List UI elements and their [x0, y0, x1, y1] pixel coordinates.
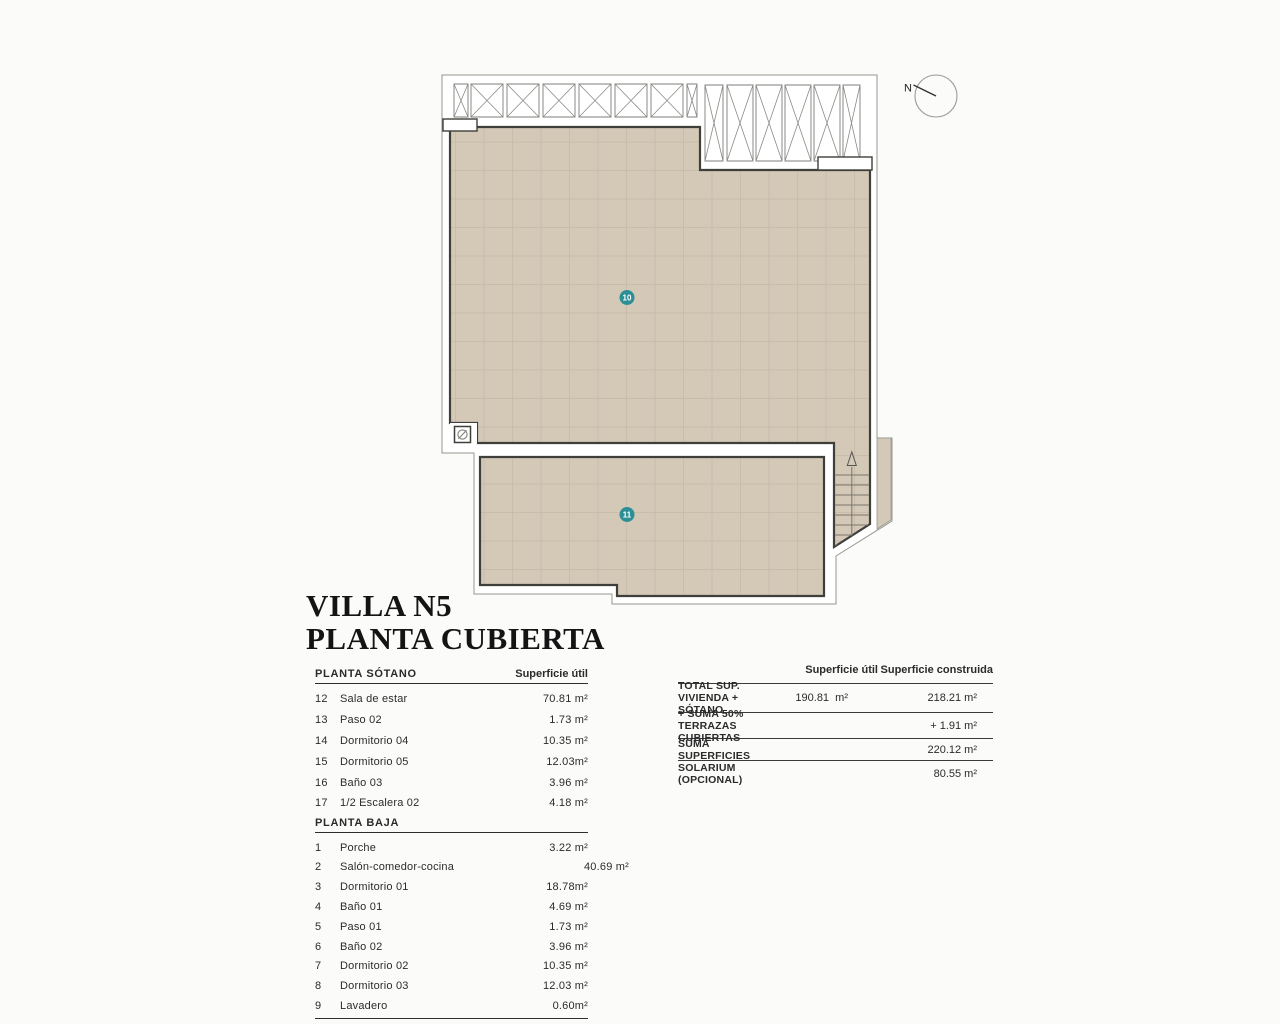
room-area: 10.35 m² — [543, 735, 588, 747]
room-number: 9 — [315, 1000, 340, 1012]
summary-label: SUMA SUPERFICIES — [678, 738, 758, 762]
room-area: 40.69 m² — [584, 861, 629, 873]
area-label-11-text: 11 — [623, 510, 632, 519]
room-name: Lavadero — [340, 1000, 553, 1012]
room-area: 4.18 m² — [549, 797, 588, 809]
room-area: 3.96 m² — [549, 941, 588, 953]
summary-row-terrazas: + SUMA 50% TERRAZAS CUBIERTAS + 1.91 m² — [678, 712, 993, 738]
table-row: 4 Baño 01 4.69 m² — [315, 897, 588, 917]
summary-label: SOLARIUM (OPCIONAL) — [678, 762, 758, 786]
room-name: Dormitorio 05 — [340, 756, 546, 768]
room-number: 15 — [315, 756, 340, 768]
room-number: 6 — [315, 941, 340, 953]
room-number: 12 — [315, 693, 340, 705]
room-number: 1 — [315, 842, 340, 854]
room-number: 16 — [315, 777, 340, 789]
table-row: 13 Paso 02 1.73 m² — [315, 710, 588, 731]
room-number: 17 — [315, 797, 340, 809]
room-area: 18.78m² — [546, 881, 588, 893]
table-row: 1 Porche 3.22 m² — [315, 838, 588, 858]
room-number: 14 — [315, 735, 340, 747]
area-label-10: 10 — [620, 290, 635, 305]
summary-row-solarium: SOLARIUM (OPCIONAL) 80.55 m² — [678, 760, 993, 787]
room-number: 2 — [315, 861, 340, 873]
column-header-superficie-util: Superficie útil — [788, 664, 878, 676]
room-name: Paso 01 — [340, 921, 549, 933]
table-row: 7 Dormitorio 02 10.35 m² — [315, 957, 588, 977]
room-name: Sala de estar — [340, 693, 543, 705]
room-number: 7 — [315, 960, 340, 972]
table-row: 3 Dormitorio 01 18.78m² — [315, 877, 588, 897]
north-compass: N — [904, 75, 957, 117]
summary-construida-value: 80.55 m² — [862, 768, 993, 780]
section-title: PLANTA BAJA — [315, 817, 399, 829]
surface-summary-table: Superficie útil Superficie construida TO… — [678, 664, 993, 787]
summary-construida-value: 220.12 m² — [862, 744, 993, 756]
table-row: 8 Dormitorio 03 12.03 m² — [315, 976, 588, 996]
table-row: 9 Lavadero 0.60m² — [315, 996, 588, 1016]
summary-row-suma: SUMA SUPERFICIES 220.12 m² — [678, 738, 993, 760]
room-area: 70.81 m² — [543, 693, 588, 705]
room-name: Dormitorio 03 — [340, 980, 543, 992]
table-row: 12 Sala de estar 70.81 m² — [315, 689, 588, 710]
roof-floor-plan: 10 11 N — [430, 60, 1005, 620]
room-name: Baño 03 — [340, 777, 549, 789]
north-label: N — [904, 83, 912, 95]
summary-construida-value: + 1.91 m² — [862, 720, 993, 732]
room-number: 3 — [315, 881, 340, 893]
room-area: 0.60m² — [553, 1000, 588, 1012]
room-name: Dormitorio 01 — [340, 881, 546, 893]
planta-baja-rows: 1 Porche 3.22 m² 2 Salón-comedor-cocina … — [315, 833, 588, 1019]
area-label-11: 11 — [620, 507, 635, 522]
table-row: 17 1/2 Escalera 02 4.18 m² — [315, 793, 588, 814]
room-name: Porche — [340, 842, 549, 854]
room-area: 10.35 m² — [543, 960, 588, 972]
table-bottom-rule — [315, 1018, 588, 1019]
table-row: 15 Dormitorio 05 12.03m² — [315, 751, 588, 772]
room-name: Baño 02 — [340, 941, 549, 953]
section-header-planta-baja: PLANTA BAJA — [315, 817, 588, 833]
wall-notch-top-right — [818, 157, 872, 170]
room-area: 1.73 m² — [549, 714, 588, 726]
room-area: 1.73 m² — [549, 921, 588, 933]
room-number: 5 — [315, 921, 340, 933]
room-area: 12.03m² — [546, 756, 588, 768]
sheet-title-line2: PLANTA CUBIERTA — [306, 622, 605, 655]
table-row: 14 Dormitorio 04 10.35 m² — [315, 731, 588, 752]
terrace-wedge — [877, 438, 891, 529]
room-areas-table: PLANTA SÓTANO Superficie útil 12 Sala de… — [315, 668, 588, 1019]
area-label-10-text: 10 — [623, 293, 632, 302]
room-name: Salón-comedor-cocina — [340, 861, 584, 873]
plan-sheet: 10 11 N VILLA N5 PLANTA CUBIERTA PLANTA … — [0, 0, 1280, 1024]
room-name: Dormitorio 04 — [340, 735, 543, 747]
column-header-superficie-construida: Superficie construida — [878, 664, 993, 676]
sheet-title: VILLA N5 PLANTA CUBIERTA — [306, 589, 605, 655]
sheet-title-line1: VILLA N5 — [306, 589, 605, 622]
room-area: 12.03 m² — [543, 980, 588, 992]
wall-notch-top-left — [443, 119, 477, 131]
room-name: Baño 01 — [340, 901, 549, 913]
section-title: PLANTA SÓTANO — [315, 668, 417, 680]
roof-area-11 — [480, 457, 824, 596]
summary-util-value: 190.81 m² — [758, 692, 862, 704]
room-name: 1/2 Escalera 02 — [340, 797, 549, 809]
room-area: 4.69 m² — [549, 901, 588, 913]
table-row: 16 Baño 03 3.96 m² — [315, 772, 588, 793]
table-row: 5 Paso 01 1.73 m² — [315, 917, 588, 937]
column-header-superficie-util: Superficie útil — [515, 668, 588, 680]
planta-sotano-rows: 12 Sala de estar 70.81 m² 13 Paso 02 1.7… — [315, 684, 588, 814]
section-header-planta-sotano: PLANTA SÓTANO Superficie útil — [315, 668, 588, 684]
room-number: 8 — [315, 980, 340, 992]
room-name: Dormitorio 02 — [340, 960, 543, 972]
room-number: 4 — [315, 901, 340, 913]
room-name: Paso 02 — [340, 714, 549, 726]
summary-construida-value: 218.21 m² — [862, 692, 993, 704]
table-row: 2 Salón-comedor-cocina 40.69 m² — [315, 858, 588, 878]
room-area: 3.22 m² — [549, 842, 588, 854]
room-area: 3.96 m² — [549, 777, 588, 789]
table-row: 6 Baño 02 3.96 m² — [315, 937, 588, 957]
room-number: 13 — [315, 714, 340, 726]
